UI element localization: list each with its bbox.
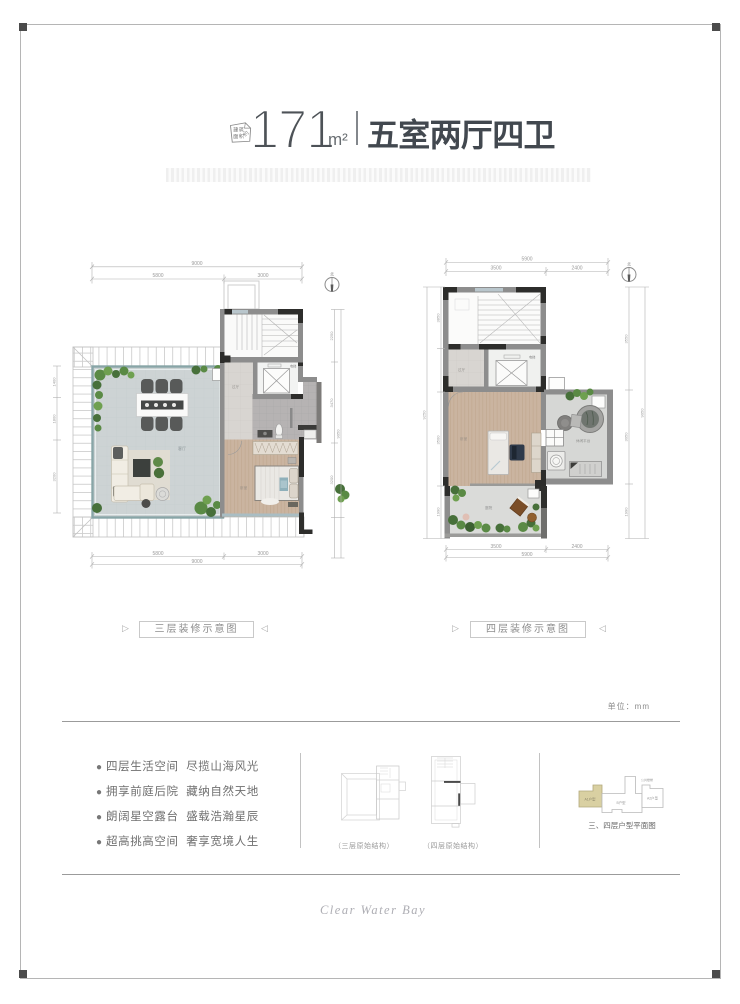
svg-text:5800: 5800 [152,273,163,279]
svg-text:9250: 9250 [422,410,427,420]
svg-text:9000: 9000 [191,559,202,565]
svg-text:B户型: B户型 [616,800,626,805]
svg-text:北: 北 [627,261,631,267]
svg-text:3850: 3850 [436,313,441,323]
svg-text:5800: 5800 [152,551,163,557]
svg-text:3500: 3500 [490,266,501,272]
svg-text:3200: 3200 [329,475,334,485]
svg-text:过厅: 过厅 [458,367,466,372]
svg-text:5900: 5900 [521,552,532,558]
svg-text:3050: 3050 [624,432,629,442]
svg-text:2400: 2400 [571,544,582,550]
svg-text:3550: 3550 [624,334,629,344]
svg-text:电梯: 电梯 [290,364,297,369]
svg-text:2400: 2400 [571,266,582,272]
svg-text:2250: 2250 [329,331,334,341]
svg-text:1990: 1990 [436,507,441,517]
svg-text:9000: 9000 [191,261,202,267]
svg-text:3500: 3500 [436,435,441,445]
svg-text:5900: 5900 [521,257,532,263]
svg-text:客厅: 客厅 [178,445,186,451]
svg-text:北: 北 [330,271,334,277]
svg-text:电梯: 电梯 [529,355,536,360]
svg-text:3470: 3470 [329,398,334,408]
svg-text:A1户型: A1户型 [585,797,597,802]
svg-text:公共楼梯: 公共楼梯 [641,777,653,782]
svg-text:A2户型: A2户型 [647,796,659,801]
svg-text:庭院: 庭院 [485,505,493,510]
svg-text:9050: 9050 [336,429,341,439]
svg-text:卧室: 卧室 [460,436,468,441]
svg-text:3500: 3500 [490,544,501,550]
svg-text:1800: 1800 [52,414,57,424]
svg-text:卧室: 卧室 [240,485,248,490]
svg-text:3000: 3000 [257,551,268,557]
svg-text:3200: 3200 [52,472,57,482]
svg-text:1400: 1400 [52,377,57,387]
svg-text:1990: 1990 [624,507,629,517]
svg-text:9050: 9050 [640,408,645,418]
svg-text:过厅: 过厅 [232,384,240,389]
svg-text:3000: 3000 [257,273,268,279]
svg-text:休闲平台: 休闲平台 [576,438,591,443]
